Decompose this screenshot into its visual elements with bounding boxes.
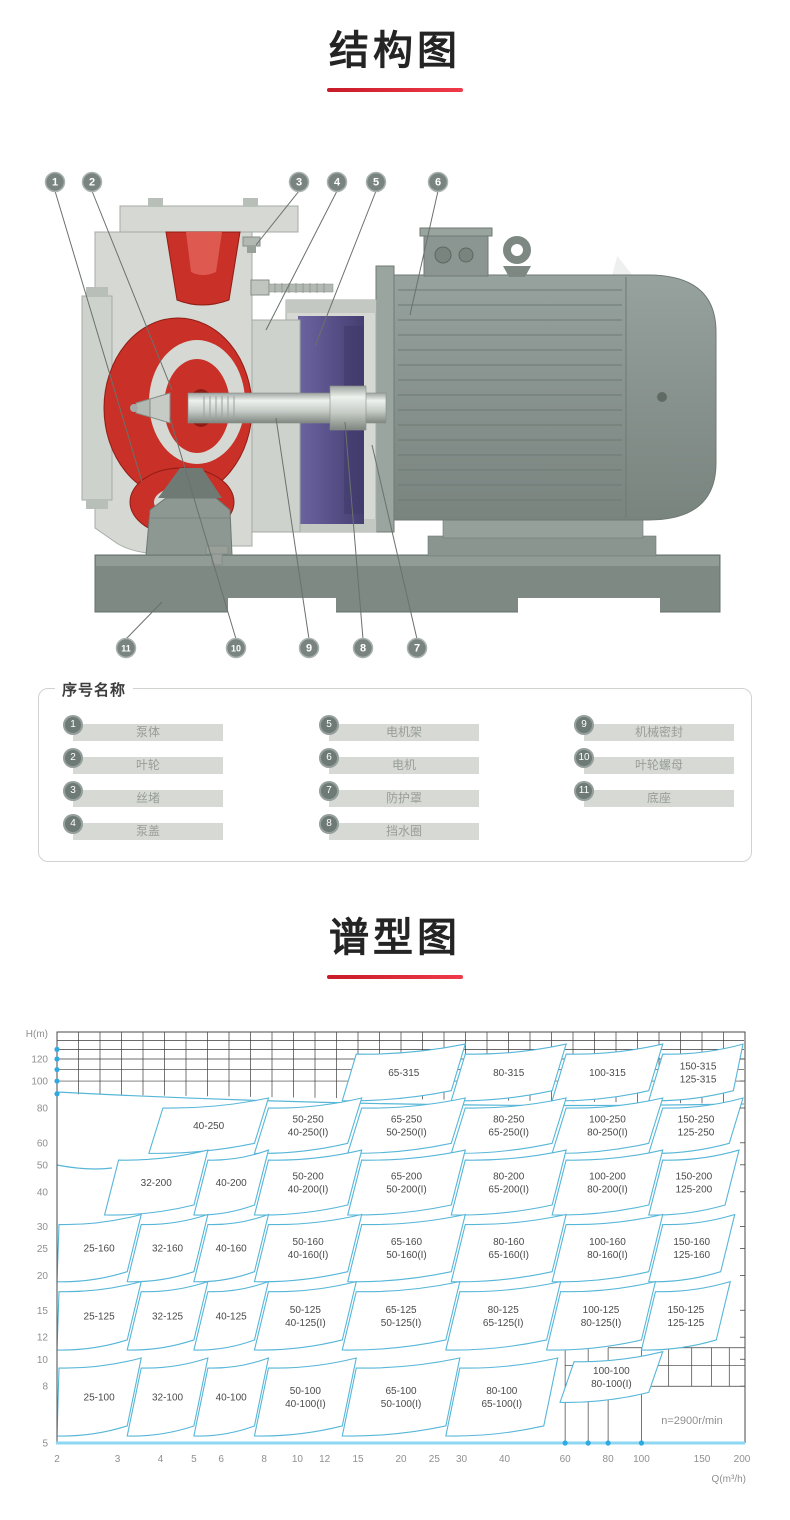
pump-base [95,555,720,613]
legend-item-number: 8 [319,814,339,834]
callout-number-10: 10 [231,644,241,654]
x-tick-label: 5 [191,1454,197,1465]
region-label: 150-315 [680,1061,717,1072]
terminal-box [424,234,488,276]
region-label: 125-315 [680,1074,717,1085]
legend-item-label: 机械密封 [584,724,734,741]
region-label: 100-315 [589,1068,626,1079]
legend-item-label: 叶轮 [73,757,223,774]
x-tick-label: 12 [319,1454,331,1465]
region-label: 100-200 [589,1172,626,1183]
callout-number-4: 4 [334,177,341,189]
region-label: 40-125(I) [285,1318,326,1329]
region-label: 125-160 [673,1250,710,1261]
region-label: 40-100 [216,1392,248,1403]
spectrum-title-underline [327,975,463,979]
callout-number-2: 2 [89,177,95,189]
region-65-200 [348,1150,466,1215]
region-label: 40-125 [216,1311,248,1322]
y-axis-title: H(m) [26,1029,48,1040]
pump-model-regions: 65-31580-315100-315150-315125-31540-2505… [57,1044,743,1436]
region-100-125 [547,1282,656,1350]
region-label: 100-160 [589,1237,626,1248]
legend-item-label: 叶轮螺母 [584,757,734,774]
region-label: 25-100 [84,1392,116,1403]
region-label: 50-160 [293,1237,325,1248]
callout-number-8: 8 [360,643,366,655]
region-label: 150-160 [673,1237,710,1248]
region-label: 50-250(I) [386,1128,427,1139]
x-tick-label: 2 [54,1454,60,1465]
pump-cover [250,320,300,532]
callout-number-5: 5 [373,177,379,189]
x-tick-label: 3 [115,1454,121,1465]
region-label: 80-125 [488,1305,520,1316]
legend-item-number: 2 [63,748,83,768]
y-tick-label: 80 [37,1104,49,1115]
region-label: 150-200 [676,1172,713,1183]
y-tick-label: 12 [37,1333,49,1344]
x-tick-label: 200 [734,1454,751,1465]
region-100-200 [552,1150,663,1215]
x-tick-label: 30 [456,1454,468,1465]
speed-annotation: n=2900r/min [661,1415,722,1427]
parts-legend-box: 序号名称 1泵体2叶轮3丝堵4泵盖5电机架6电机7防护罩8挡水圈9机械密封10叶… [38,688,752,862]
legend-item-5: 5电机架 [319,715,494,745]
x-tick-label: 60 [560,1454,572,1465]
region-label: 40-160(I) [288,1250,329,1261]
legend-item-8: 8挡水圈 [319,814,494,844]
region-label: 25-160 [84,1244,116,1255]
region-label: 50-200(I) [386,1185,427,1196]
callout-number-11: 11 [121,644,131,654]
region-label: 32-160 [152,1244,184,1255]
region-100-250 [552,1098,663,1153]
region-label: 40-200(I) [288,1185,329,1196]
motor-feet [428,516,656,556]
x-tick-label: 25 [429,1454,441,1465]
x-tick-label: 100 [633,1454,650,1465]
region-label: 80-250(I) [587,1128,628,1139]
legend-item-label: 电机架 [329,724,479,741]
legend-item-number: 10 [574,748,594,768]
region-label: 32-125 [152,1311,184,1322]
pump-drawing [82,198,720,613]
y-tick-label: 15 [37,1306,49,1317]
y-tick-label: 100 [31,1077,48,1088]
region-label: 50-200 [293,1172,325,1183]
legend-item-label: 挡水圈 [329,823,479,840]
region-50-250 [254,1098,361,1153]
x-tick-label: 20 [395,1454,407,1465]
region-label: 80-160 [493,1237,525,1248]
region-label: 65-200 [391,1172,423,1183]
legend-item-number: 4 [63,814,83,834]
structure-section-header: 结构图 [0,18,790,92]
y-tick-label: 8 [42,1382,48,1393]
y-tick-label: 25 [37,1244,49,1255]
x-tick-label: 10 [292,1454,304,1465]
region-label: 65-250 [391,1115,423,1126]
region-80-160 [451,1215,566,1282]
region-label: 125-125 [668,1318,705,1329]
region-label: 50-100 [290,1386,322,1397]
legend-item-1: 1泵体 [63,715,238,745]
region-100-100 [560,1352,663,1403]
structure-title: 结构图 [0,18,790,76]
callout-number-9: 9 [306,643,312,655]
motor-body [376,228,716,532]
region-label: 40-250 [193,1121,225,1132]
region-label: 80-250 [493,1115,525,1126]
region-65-125 [342,1282,460,1350]
legend-item-number: 1 [63,715,83,735]
region-150-250 [649,1098,743,1153]
x-tick-label: 40 [499,1454,511,1465]
region-label: 125-200 [676,1185,713,1196]
y-tick-label: 50 [37,1160,49,1171]
region-label: 40-200 [216,1178,248,1189]
y-tick-label: 20 [37,1271,49,1282]
type-spectrum-chart: 65-31580-315100-315150-315125-31540-2505… [0,1010,790,1520]
callout-number-7: 7 [414,643,420,655]
legend-item-9: 9机械密封 [574,715,749,745]
region-label: 50-125 [290,1305,322,1316]
x-tick-label: 15 [352,1454,364,1465]
region-label: 50-250 [293,1115,325,1126]
region-150-200 [649,1150,739,1215]
legend-item-6: 6电机 [319,748,494,778]
region-80-200 [451,1150,566,1215]
region-150-315 [649,1044,743,1101]
pump-product-page: 结构图 1234561110987 序号名称 1泵体2叶轮3丝堵4泵盖5电机架6… [0,0,790,1520]
legend-item-number: 5 [319,715,339,735]
y-tick-label: 120 [31,1055,48,1066]
region-label: 125-250 [678,1128,715,1139]
region-label: 65-160(I) [488,1250,529,1261]
pump-structure-diagram: 1234561110987 [0,150,790,670]
callout-number-1: 1 [52,177,58,189]
region-65-100 [342,1358,460,1436]
region-150-160 [649,1215,735,1282]
region-label: 50-100(I) [381,1399,422,1410]
region-label: 40-100(I) [285,1399,326,1410]
legend-item-2: 2叶轮 [63,748,238,778]
region-label: 65-100 [385,1386,417,1397]
region-label: 80-100 [486,1386,518,1397]
region-80-250 [451,1098,566,1153]
region-50-200 [254,1150,361,1215]
region-label: 65-250(I) [488,1128,529,1139]
region-label: 40-250(I) [288,1128,329,1139]
x-tick-label: 6 [218,1454,224,1465]
region-label: 80-100(I) [591,1379,632,1390]
legend-item-label: 防护罩 [329,790,479,807]
x-tick-label: 4 [158,1454,164,1465]
x-axis-title: Q(m³/h) [712,1474,746,1485]
region-label: 100-125 [583,1305,620,1316]
y-tick-label: 5 [42,1439,48,1450]
region-80-100 [446,1358,558,1436]
region-label: 65-315 [388,1068,420,1079]
region-label: 80-125(I) [581,1318,622,1329]
region-label: 65-200(I) [488,1185,529,1196]
region-label: 100-100 [593,1366,630,1377]
region-label: 50-160(I) [386,1250,427,1261]
legend-item-number: 6 [319,748,339,768]
discharge-flange [120,206,298,232]
region-50-160 [254,1215,361,1282]
region-80-125 [446,1282,561,1350]
region-label: 65-100(I) [482,1399,523,1410]
y-tick-label: 10 [37,1355,49,1366]
callout-number-3: 3 [296,177,302,189]
region-label: 32-200 [141,1178,173,1189]
region-label: 65-160 [391,1237,423,1248]
legend-item-7: 7防护罩 [319,781,494,811]
legend-item-label: 泵盖 [73,823,223,840]
region-label: 100-250 [589,1115,626,1126]
region-label: 150-250 [678,1115,715,1126]
structure-title-underline [327,88,463,92]
legend-item-label: 底座 [584,790,734,807]
region-65-160 [348,1215,466,1282]
region-label: 32-100 [152,1392,184,1403]
legend-item-10: 10叶轮螺母 [574,748,749,778]
region-100-160 [552,1215,663,1282]
region-label: 80-160(I) [587,1250,628,1261]
region-label: 25-125 [84,1311,116,1322]
legend-item-number: 9 [574,715,594,735]
region-label: 80-200 [493,1172,525,1183]
region-65-250 [348,1098,466,1153]
x-tick-label: 8 [261,1454,267,1465]
legend-item-number: 3 [63,781,83,801]
lifting-eye [507,240,527,260]
region-label: 80-315 [493,1068,525,1079]
region-150-125 [641,1282,730,1350]
callout-number-6: 6 [435,177,441,189]
legend-item-4: 4泵盖 [63,814,238,844]
region-label: 80-200(I) [587,1185,628,1196]
y-tick-label: 40 [37,1187,49,1198]
legend-item-number: 11 [574,781,594,801]
y-tick-label: 30 [37,1222,49,1233]
region-label: 50-125(I) [381,1318,422,1329]
legend-item-number: 7 [319,781,339,801]
y-tick-label: 60 [37,1138,49,1149]
region-50-125 [254,1282,356,1350]
spectrum-title: 谱型图 [0,905,790,963]
parts-legend-title: 序号名称 [55,679,133,700]
spectrum-section-header: 谱型图 [0,905,790,979]
region-label: 150-125 [668,1305,705,1316]
region-label: 40-160 [216,1244,248,1255]
legend-item-label: 泵体 [73,724,223,741]
legend-item-label: 丝堵 [73,790,223,807]
region-label: 65-125(I) [483,1318,524,1329]
legend-item-label: 电机 [329,757,479,774]
region-label: 65-125 [385,1305,417,1316]
region-50-100 [254,1358,356,1436]
x-tick-label: 80 [603,1454,615,1465]
legend-item-11: 11底座 [574,781,749,811]
x-tick-label: 150 [694,1454,711,1465]
legend-item-3: 3丝堵 [63,781,238,811]
